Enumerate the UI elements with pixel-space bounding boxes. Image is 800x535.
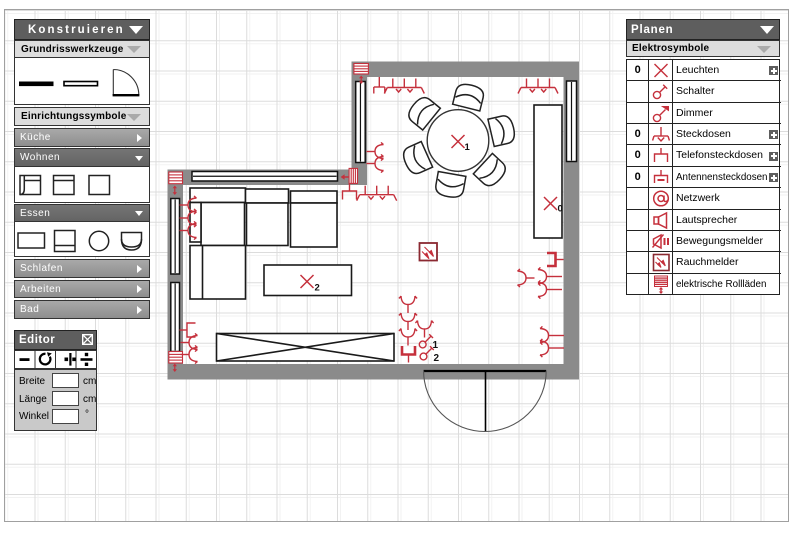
svg-text:0: 0 — [558, 204, 563, 215]
svg-text:1: 1 — [433, 340, 439, 351]
svg-text:2: 2 — [434, 353, 440, 364]
svg-text:1: 1 — [465, 142, 471, 153]
svg-text:2: 2 — [315, 283, 320, 294]
